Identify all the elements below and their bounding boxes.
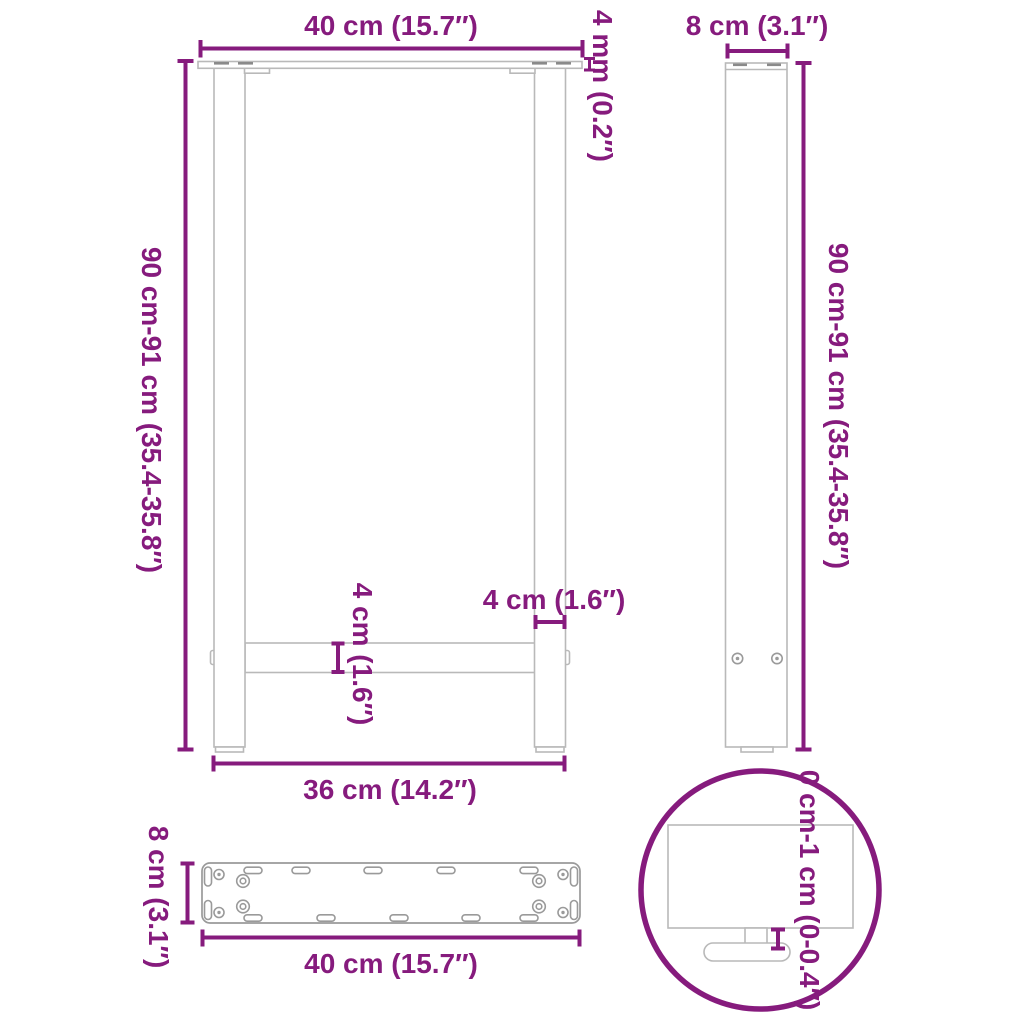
plate-width-label: 40 cm (15.7″) xyxy=(304,950,478,978)
front-view-drawing xyxy=(198,62,582,753)
detail-view-drawing xyxy=(641,771,879,1009)
plate-depth-label: 8 cm (3.1″) xyxy=(144,826,172,969)
front-bottom-width-label: 36 cm (14.2″) xyxy=(303,776,477,804)
side-view-drawing xyxy=(726,63,788,752)
plate-view-drawing xyxy=(202,863,580,923)
front-plate-thickness-label: 4 mm (0.2″) xyxy=(588,10,616,162)
front-crossbar-height-label: 4 cm (1.6″) xyxy=(348,583,376,726)
front-height-label: 90 cm-91 cm (35.4-35.8″) xyxy=(137,247,165,573)
detail-adjust-range-label: 0 cm-1 cm (0-0.4″) xyxy=(795,770,823,1011)
dimension-diagram-page: 40 cm (15.7″) 4 mm (0.2″) 90 cm-91 cm (3… xyxy=(0,0,1024,1024)
front-leg-width-label: 4 cm (1.6″) xyxy=(483,586,626,614)
side-depth-label: 8 cm (3.1″) xyxy=(686,12,829,40)
front-top-width-label: 40 cm (15.7″) xyxy=(304,12,478,40)
side-height-label: 90 cm-91 cm (35.4-35.8″) xyxy=(824,243,852,569)
